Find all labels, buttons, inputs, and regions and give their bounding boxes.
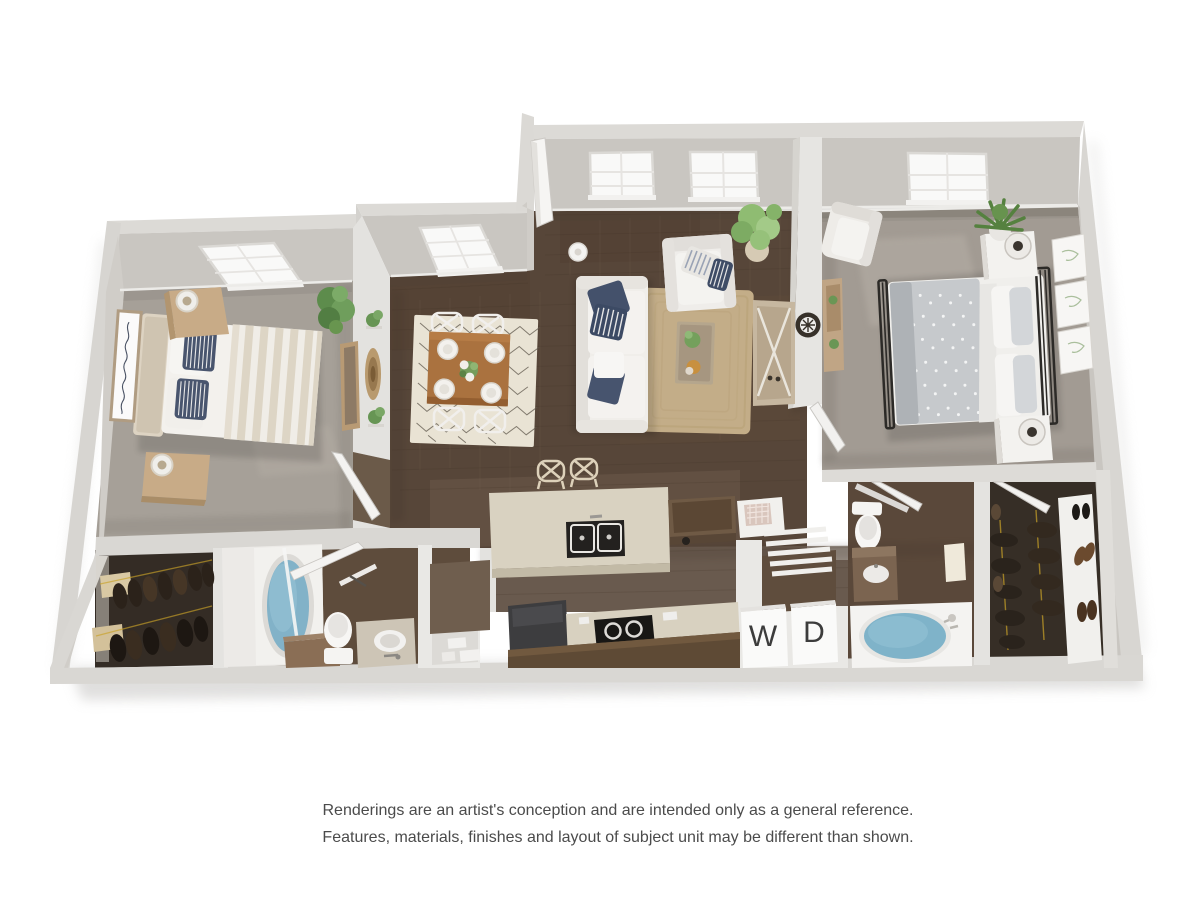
svg-text:D: D — [803, 616, 825, 649]
svg-text:W: W — [749, 620, 778, 653]
